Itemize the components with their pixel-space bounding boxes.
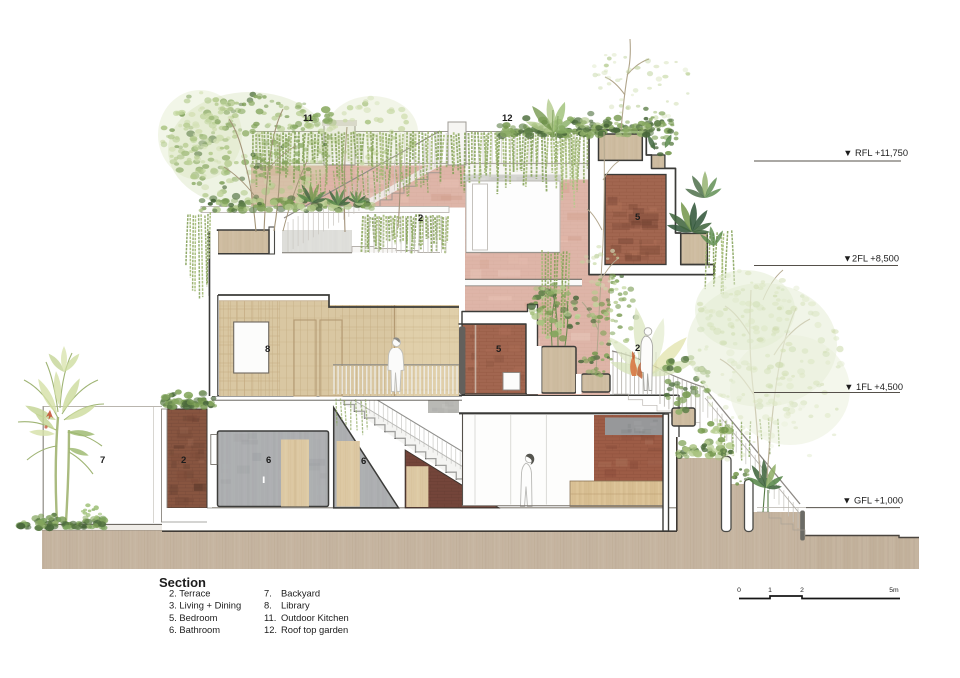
svg-text:5m: 5m (889, 587, 899, 594)
svg-text:Library: Library (281, 600, 310, 611)
svg-text:11.: 11. (264, 612, 276, 623)
svg-text:▼2FL +8,500: ▼2FL +8,500 (843, 254, 899, 264)
svg-text:Backyard: Backyard (281, 588, 320, 599)
svg-text:6: 6 (266, 455, 271, 466)
svg-text:Outdoor Kitchen: Outdoor Kitchen (281, 612, 349, 623)
svg-text:Roof top garden: Roof top garden (281, 624, 348, 635)
svg-text:8.: 8. (264, 600, 272, 611)
svg-text:2: 2 (418, 213, 423, 224)
svg-text:8: 8 (265, 344, 270, 355)
svg-text:6. Bathroom: 6. Bathroom (169, 624, 220, 635)
svg-text:2: 2 (635, 343, 640, 354)
svg-text:12.: 12. (264, 624, 277, 635)
svg-text:0: 0 (737, 587, 741, 594)
svg-text:3. Living + Dining: 3. Living + Dining (169, 600, 241, 611)
svg-text:7: 7 (100, 455, 105, 466)
svg-text:2: 2 (800, 587, 804, 594)
svg-text:11: 11 (303, 113, 314, 124)
svg-text:12: 12 (502, 113, 513, 124)
svg-text:1: 1 (768, 587, 772, 594)
svg-text:6: 6 (361, 456, 366, 467)
svg-text:7.: 7. (264, 588, 272, 599)
svg-text:5. Bedroom: 5. Bedroom (169, 612, 218, 623)
svg-text:2: 2 (181, 455, 186, 466)
svg-text:2. Terrace: 2. Terrace (169, 588, 211, 599)
svg-text:▼ GFL +1,000: ▼ GFL +1,000 (842, 496, 903, 506)
svg-text:5: 5 (496, 344, 502, 355)
svg-text:5: 5 (635, 212, 641, 223)
svg-text:▼ 1FL +4,500: ▼ 1FL +4,500 (844, 382, 903, 392)
svg-text:▼ RFL +11,750: ▼ RFL +11,750 (843, 148, 908, 158)
